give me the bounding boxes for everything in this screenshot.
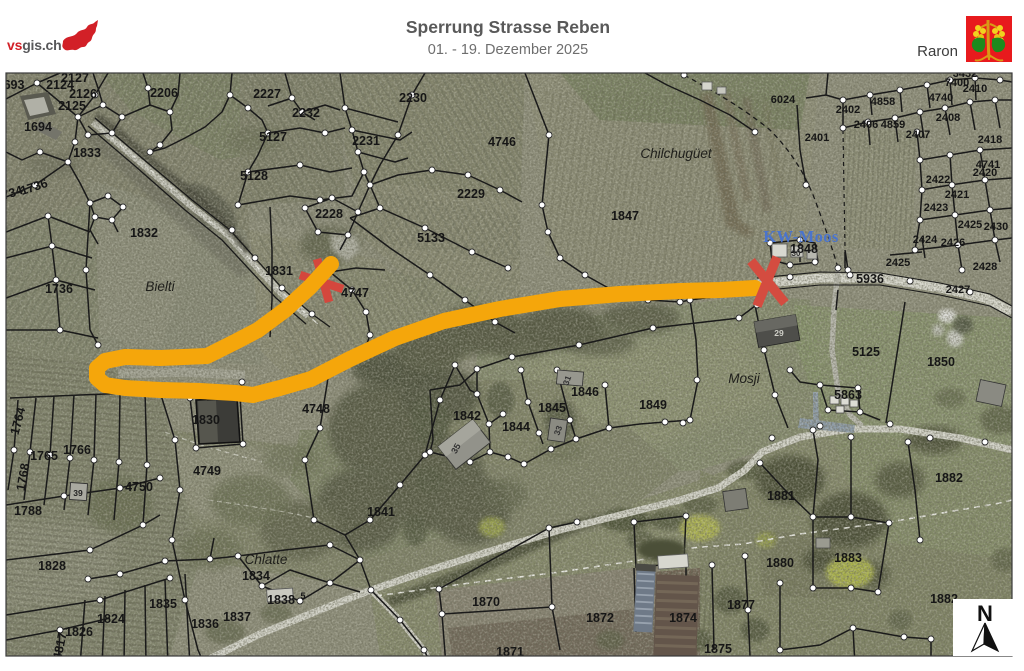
svg-text:1844: 1844 [502, 420, 530, 434]
svg-text:2423: 2423 [924, 202, 948, 214]
svg-text:4858: 4858 [871, 96, 895, 108]
svg-text:1824: 1824 [97, 612, 125, 626]
svg-text:29: 29 [774, 328, 784, 338]
svg-text:2227: 2227 [253, 87, 281, 101]
svg-text:2410: 2410 [963, 83, 987, 95]
svg-text:1828: 1828 [38, 559, 66, 573]
svg-text:1833: 1833 [73, 146, 101, 160]
svg-text:2422: 2422 [926, 174, 950, 186]
svg-text:Raron: Raron [917, 43, 958, 60]
svg-text:1831: 1831 [265, 264, 293, 278]
svg-text:39: 39 [73, 488, 83, 498]
svg-text:1882: 1882 [935, 471, 963, 485]
svg-text:4748: 4748 [302, 402, 330, 416]
svg-text:1832: 1832 [130, 226, 158, 240]
svg-text:1837: 1837 [223, 610, 251, 624]
svg-text:4750: 4750 [125, 480, 153, 494]
svg-text:1846: 1846 [571, 385, 599, 399]
svg-text:2228: 2228 [315, 207, 343, 221]
svg-text:4859: 4859 [881, 119, 905, 131]
svg-text:5125: 5125 [852, 345, 880, 359]
svg-text:1877: 1877 [727, 598, 755, 612]
svg-text:4749: 4749 [193, 464, 221, 478]
svg-text:2418: 2418 [978, 134, 1002, 146]
svg-text:2421: 2421 [945, 189, 969, 201]
svg-text:1874: 1874 [669, 611, 697, 625]
svg-text:5133: 5133 [417, 231, 445, 245]
svg-text:2125: 2125 [58, 99, 86, 113]
svg-text:1881: 1881 [767, 489, 795, 503]
svg-text:5127: 5127 [259, 130, 287, 144]
svg-text:5936: 5936 [856, 272, 884, 286]
svg-text:2401: 2401 [805, 132, 829, 144]
svg-text:2427: 2427 [946, 284, 970, 296]
svg-text:1736: 1736 [45, 282, 73, 296]
svg-text:2402: 2402 [836, 104, 860, 116]
svg-text:4746: 4746 [488, 135, 516, 149]
svg-text:1694: 1694 [24, 120, 52, 134]
svg-text:2425: 2425 [886, 257, 910, 269]
svg-text:2425: 2425 [958, 219, 982, 231]
svg-text:4740: 4740 [929, 92, 953, 104]
svg-text:1870: 1870 [472, 595, 500, 609]
svg-text:1841: 1841 [367, 505, 395, 519]
svg-text:5: 5 [300, 591, 305, 601]
svg-text:1849: 1849 [639, 398, 667, 412]
svg-text:2424: 2424 [913, 234, 938, 246]
svg-text:Bielti: Bielti [145, 279, 175, 294]
svg-text:4747: 4747 [341, 286, 369, 300]
svg-text:693: 693 [4, 78, 25, 92]
svg-text:1834: 1834 [242, 569, 270, 583]
svg-text:1788: 1788 [14, 504, 42, 518]
svg-text:2406: 2406 [854, 119, 878, 131]
svg-text:1845: 1845 [538, 401, 566, 415]
svg-text:2420: 2420 [973, 167, 997, 179]
svg-text:2231: 2231 [352, 134, 380, 148]
svg-text:30: 30 [792, 249, 801, 258]
svg-text:1835: 1835 [149, 597, 177, 611]
svg-text:Chilchugüet: Chilchugüet [640, 146, 713, 161]
svg-text:2230: 2230 [399, 91, 427, 105]
svg-text:1838: 1838 [267, 593, 295, 607]
svg-text:1880: 1880 [766, 556, 794, 570]
svg-text:2206: 2206 [150, 86, 178, 100]
svg-text:5863: 5863 [834, 388, 862, 402]
svg-text:2430: 2430 [984, 221, 1008, 233]
svg-text:01. - 19. Dezember 2025: 01. - 19. Dezember 2025 [428, 42, 588, 58]
svg-text:1850: 1850 [927, 355, 955, 369]
svg-text:2232: 2232 [292, 106, 320, 120]
svg-text:1836: 1836 [191, 617, 219, 631]
svg-text:Chlatte: Chlatte [245, 552, 288, 567]
svg-text:1766: 1766 [63, 443, 91, 457]
svg-text:1847: 1847 [611, 209, 639, 223]
svg-text:1842: 1842 [453, 409, 481, 423]
svg-text:6024: 6024 [771, 94, 796, 106]
svg-text:vsgis.ch: vsgis.ch [7, 37, 61, 53]
svg-text:1872: 1872 [586, 611, 614, 625]
svg-text:2229: 2229 [457, 187, 485, 201]
svg-text:KW-Moos: KW-Moos [763, 227, 839, 246]
svg-text:Mosji: Mosji [728, 371, 761, 386]
svg-text:1830: 1830 [192, 413, 220, 427]
svg-text:N: N [977, 601, 993, 626]
svg-text:2408: 2408 [936, 112, 960, 124]
svg-text:1875: 1875 [704, 642, 732, 656]
svg-text:1826: 1826 [65, 625, 93, 639]
svg-text:1765: 1765 [30, 449, 58, 463]
svg-text:Sperrung Strasse Reben: Sperrung Strasse Reben [406, 17, 610, 37]
svg-text:2407: 2407 [906, 129, 930, 141]
svg-text:1883: 1883 [834, 551, 862, 565]
svg-text:5128: 5128 [240, 169, 268, 183]
svg-text:2426: 2426 [941, 237, 965, 249]
svg-text:2428: 2428 [973, 261, 997, 273]
